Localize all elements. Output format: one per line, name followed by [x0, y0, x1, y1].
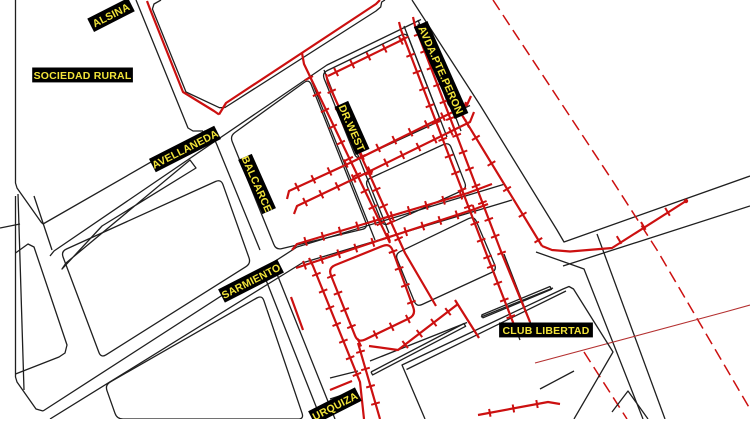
svg-text:CLUB LIBERTAD: CLUB LIBERTAD [503, 325, 590, 337]
svg-text:SOCIEDAD RURAL: SOCIEDAD RURAL [34, 70, 132, 82]
